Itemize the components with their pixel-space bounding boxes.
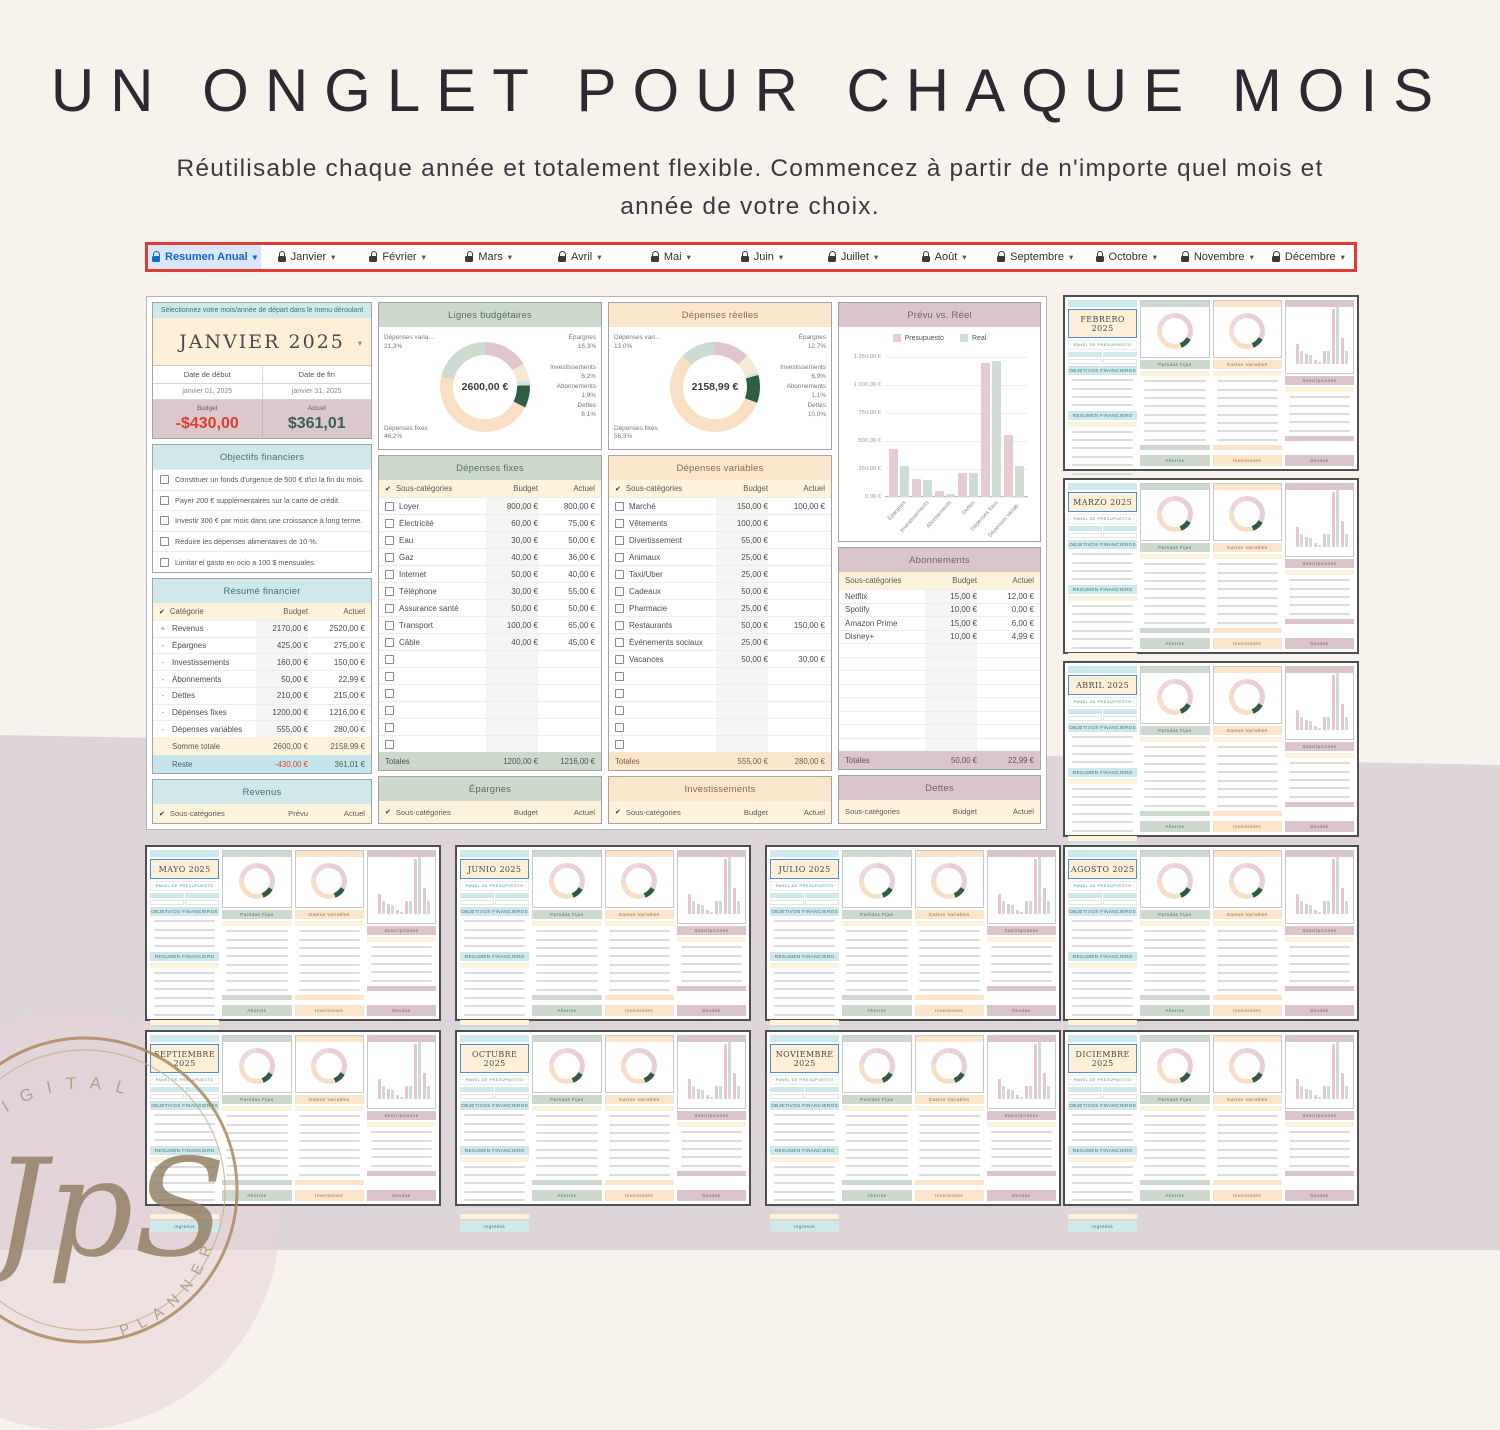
thumb-footer-ahorros: Ahorros (1140, 1190, 1209, 1201)
tab-label: Septembre (1010, 251, 1064, 263)
month-dropdown-value: JANVIER 2025 (179, 331, 345, 353)
chevron-down-icon: ▾ (508, 252, 512, 263)
legend-item: Real (960, 334, 986, 342)
donut-label: Épargnes16,3% (569, 334, 596, 351)
donut-label: Dettes10,0% (808, 402, 826, 419)
y-tick-label: 750,00 € (845, 410, 881, 416)
bar-group: Investissements (912, 357, 932, 497)
bar-presupuesto (912, 479, 921, 497)
budget-vs-real-chart-panel: Prévu vs. Réel PresupuestoReal 1 250,00 … (838, 302, 1041, 542)
column-subcategories: Sous-catégories (845, 807, 920, 816)
thumb-footer-deudas: Deudas (677, 1190, 746, 1201)
tab-août[interactable]: Août▾ (899, 245, 990, 269)
bar-presupuesto (1004, 435, 1013, 497)
column-budget: Budget (925, 576, 977, 585)
subscriptions-title: Abonnements (839, 548, 1040, 572)
checkbox[interactable] (615, 655, 624, 664)
row-label: Spotify (845, 605, 920, 614)
thumb-col-1: JUNIO 2025· PANEL DE PRESUPUESTO ·OBJETI… (460, 850, 529, 1016)
table-row-empty (379, 684, 601, 701)
thumb-variable-header: Gastos Variables (1213, 1095, 1282, 1104)
table-header-row: Sous-catégoriesBudgetActuel (839, 572, 1040, 589)
table-row: Divertissement55,00 € (609, 531, 831, 548)
tab-juin[interactable]: Juin▾ (716, 245, 807, 269)
totals-actual: 2158,99 € (313, 742, 365, 751)
tab-mars[interactable]: Mars▾ (443, 245, 534, 269)
x-category-label: Dettes (961, 500, 976, 516)
thumb-instruction-bar (1068, 483, 1137, 490)
tab-resumen-anual[interactable]: Resumen Anual▾ (148, 245, 261, 269)
date-labels-row: Date de début Date de fin (153, 366, 371, 384)
chevron-down-icon: ▾ (597, 252, 601, 263)
thumb-footer-deudas: Deudas (367, 1190, 436, 1201)
thumb-instruction-bar (460, 1035, 529, 1042)
table-row: Vacances50,00 €30,00 € (609, 650, 831, 667)
table-row-empty (379, 701, 601, 718)
thumb-footer-inversiones: Inversiones (1213, 455, 1282, 466)
thumb-variable-header: Gastos Variables (1213, 726, 1282, 735)
tab-label: Février (382, 251, 416, 263)
thumb-date-headers (1068, 709, 1137, 714)
financial-goals-panel: Objectifs financiers Constituer un fonds… (152, 444, 372, 573)
thumb-bar-chart (367, 850, 436, 924)
row-label: Vacances (629, 655, 711, 664)
thumb-col-2: Partidas FijasAhorros (842, 850, 911, 1016)
tab-label: Avril (571, 251, 592, 263)
donut-label-name: Investissements (780, 364, 826, 373)
checkbox[interactable] (160, 516, 169, 525)
lock-icon (1181, 256, 1189, 262)
thumb-footer-deudas: Deudas (1285, 638, 1354, 649)
checkbox[interactable] (615, 570, 624, 579)
thumb-footer-inversiones: Inversiones (915, 1190, 984, 1201)
table-row-empty (609, 735, 831, 752)
thumb-footer-inversiones: Inversiones (605, 1190, 674, 1201)
table-row-empty (379, 650, 601, 667)
checkbox[interactable] (615, 519, 624, 528)
thumb-real-donut (1213, 850, 1282, 908)
thumb-date-values (460, 1094, 529, 1099)
month-thumbnail: MAYO 2025· PANEL DE PRESUPUESTO ·OBJETIV… (145, 845, 441, 1021)
thumb-col-3: Gastos VariablesInversiones (605, 1035, 674, 1201)
checkbox[interactable] (385, 672, 394, 681)
chevron-down-icon: ▾ (1341, 252, 1345, 263)
svg-text:DIGITAL: DIGITAL (0, 1073, 141, 1132)
checkbox[interactable] (385, 689, 394, 698)
row-budget: 60,00 € (486, 515, 538, 531)
checkbox[interactable] (615, 723, 624, 732)
thumb-subscriptions-header: Suscripciones (987, 1111, 1056, 1120)
row-actual: 6,00 € (982, 619, 1034, 628)
thumb-subscriptions-header: Suscripciones (1285, 376, 1354, 385)
row-label: Restaurants (629, 621, 711, 630)
row-budget: 25,00 € (716, 634, 768, 650)
thumb-date-headers (460, 1087, 529, 1092)
tab-septembre[interactable]: Septembre▾ (990, 245, 1081, 269)
bar-real (946, 494, 955, 497)
y-tick-label: 1 000,00 € (845, 382, 881, 388)
check-icon: ✔ (385, 808, 391, 816)
donut-label-name: Épargnes (799, 334, 826, 343)
thumb-bar-chart (987, 1035, 1056, 1109)
bar-presupuesto (981, 363, 990, 497)
donut-label-pct: 1,9% (557, 392, 596, 401)
tab-mai[interactable]: Mai▾ (625, 245, 716, 269)
checkbox[interactable] (160, 537, 169, 546)
totals-budget: 555,00 € (716, 757, 768, 766)
chevron-down-icon: ▾ (1250, 252, 1254, 263)
thumb-month-title: ABRIL 2025 (1068, 675, 1137, 695)
donut-label-name: Dépenses fixes (614, 425, 658, 434)
thumb-footer-inversiones: Inversiones (1213, 1005, 1282, 1016)
thumb-summary-header: RESUMEN FINANCIERO (460, 952, 529, 961)
totals-row: Totales555,00 €280,00 € (609, 752, 831, 770)
goal-text: Constituer un fonds d'urgence de 500 € d… (175, 475, 364, 484)
lock-icon (741, 256, 749, 262)
checkbox[interactable] (385, 621, 394, 630)
date-start-label: Date de début (153, 366, 263, 383)
tab-label: Juin (754, 251, 774, 263)
row-budget: 160,00 € (256, 654, 308, 670)
rest-actual: 361,01 € (313, 760, 365, 769)
column-subcategories: Sous-catégories (626, 808, 711, 817)
lock-icon (651, 256, 659, 262)
table-row-empty (839, 738, 1040, 752)
checkbox[interactable] (385, 519, 394, 528)
thumb-date-headers (770, 893, 839, 898)
checkbox[interactable] (385, 740, 394, 749)
table-header-row: ✔Sous-catégoriesBudgetActuel (379, 480, 601, 497)
thumb-budget-donut (222, 850, 291, 908)
donut-center-total: 2158,99 € (670, 342, 760, 432)
thumb-col-1: MAYO 2025· PANEL DE PRESUPUESTO ·OBJETIV… (150, 850, 219, 1016)
row-label: Divertissement (629, 536, 711, 545)
thumb-month-title: JUNIO 2025 (460, 859, 529, 879)
thumb-objectives-header: OBJETIVOS FINANCIEROS (1068, 907, 1137, 916)
thumb-col-2: Partidas FijasAhorros (842, 1035, 911, 1201)
thumb-footer-ahorros: Ahorros (532, 1190, 601, 1201)
checkbox[interactable] (385, 638, 394, 647)
column-actual: Actuel (773, 808, 825, 817)
table-header-row: Sous-catégoriesBudgetActuel (839, 800, 1040, 823)
lock-icon (465, 256, 473, 262)
row-actual: 30,00 € (773, 655, 825, 664)
thumb-variable-header: Gastos Variables (295, 1095, 364, 1104)
thumb-real-donut (1213, 300, 1282, 358)
thumb-fixed-header: Partidas Fijas (1140, 910, 1209, 919)
thumb-bar-chart (1285, 300, 1354, 374)
budget-lines-chart-panel: Lignes budgétaires 2600,00 €Dépenses var… (378, 302, 602, 450)
budget-value: -$430,00 (153, 415, 262, 433)
thumb-panel-subtitle: · PANEL DE PRESUPUESTO · (1068, 514, 1137, 524)
check-icon: ✔ (385, 485, 391, 493)
thumb-summary-header: RESUMEN FINANCIERO (150, 952, 219, 961)
thumb-objectives-header: OBJETIVOS FINANCIEROS (770, 1101, 839, 1110)
checkbox[interactable] (385, 587, 394, 596)
lock-icon (922, 256, 930, 262)
row-label: Disney+ (845, 632, 920, 641)
fixed-expenses-panel: Dépenses fixes ✔Sous-catégoriesBudgetAct… (378, 455, 602, 771)
thumb-instruction-bar (1068, 1035, 1137, 1042)
column-budget: Budget (925, 807, 977, 816)
checkbox[interactable] (615, 502, 624, 511)
real-expenses-donut-chart: 2158,99 €Dépenses vari...13,0%Épargnes12… (609, 327, 831, 449)
sheet-column-2: Lignes budgétaires 2600,00 €Dépenses var… (378, 302, 602, 824)
checkbox[interactable] (615, 621, 624, 630)
row-actual: 275,00 € (313, 641, 365, 650)
thumb-budget-donut (842, 850, 911, 908)
thumb-summary-header: RESUMEN FINANCIERO (1068, 1146, 1137, 1155)
tab-janvier[interactable]: Janvier▾ (261, 245, 352, 269)
checkbox[interactable] (615, 672, 624, 681)
thumb-budget-donut (1140, 850, 1209, 908)
checkbox[interactable] (385, 502, 394, 511)
thumb-footer-ahorros: Ahorros (842, 1005, 911, 1016)
thumb-col-1: NOVIEMBRE 2025· PANEL DE PRESUPUESTO ·OB… (770, 1035, 839, 1201)
checkbox[interactable] (615, 553, 624, 562)
checkbox[interactable] (385, 655, 394, 664)
chevron-down-icon: ▾ (874, 252, 878, 263)
totals-actual: 22,99 € (982, 756, 1034, 765)
thumb-fixed-header: Partidas Fijas (842, 1095, 911, 1104)
row-label: Dépenses variables (172, 725, 251, 734)
investments-section: Investissements✔Sous-catégoriesBudgetAct… (608, 776, 832, 824)
thumb-objectives-header: OBJETIVOS FINANCIEROS (1068, 540, 1137, 549)
checkbox[interactable] (160, 496, 169, 505)
row-label: Épargnes (172, 641, 251, 650)
goal-text: Investir 300 € par mois dans une croissa… (175, 516, 362, 525)
page-title: UN ONGLET POUR CHAQUE MOIS (0, 56, 1500, 125)
thumb-date-values (1068, 1094, 1137, 1099)
actual-value: $361,01 (263, 415, 372, 433)
column-category: Catégorie (170, 607, 251, 616)
tab-label: Août (935, 251, 958, 263)
row-budget: 40,00 € (486, 634, 538, 650)
thumb-summary-header: RESUMEN FINANCIERO (1068, 585, 1137, 594)
row-label: Internet (399, 570, 481, 579)
column-budget: Budget (486, 484, 538, 493)
column-budget: Budget (486, 808, 538, 817)
thumb-fixed-header: Partidas Fijas (1140, 726, 1209, 735)
row-budget: 50,00 € (716, 651, 768, 667)
thumb-objectives-header: OBJETIVOS FINANCIEROS (1068, 366, 1137, 375)
thumb-col-2: Partidas FijasAhorros (1140, 1035, 1209, 1201)
budget-vs-real-bar-chart: 1 250,00 €1 000,00 €750,00 €500,00 €250,… (845, 351, 1030, 539)
totals-budget: 1200,00 € (486, 757, 538, 766)
thumb-panel-subtitle: · PANEL DE PRESUPUESTO · (1068, 881, 1137, 891)
thumb-subscriptions-header: Suscripciones (1285, 559, 1354, 568)
thumb-subscriptions-header: Suscripciones (677, 1111, 746, 1120)
checkbox[interactable] (615, 587, 624, 596)
row-actual: 150,00 € (313, 658, 365, 667)
thumb-bar-chart (1285, 1035, 1354, 1109)
donut-label-name: Dettes (808, 402, 826, 411)
thumb-budget-donut (842, 1035, 911, 1093)
donut-label-name: Investissements (550, 364, 596, 373)
thumb-col-2: Partidas FijasAhorros (222, 850, 291, 1016)
totals-label: Totales (845, 756, 920, 765)
thumb-real-donut (915, 850, 984, 908)
revenues-section: Revenus✔Sous-catégoriesPrévuActuel (152, 779, 372, 824)
sign-cell: - (159, 725, 167, 734)
column-subcategories: Sous-catégories (170, 809, 251, 818)
row-actual: 4,99 € (982, 632, 1034, 641)
thumb-col-4: SuscripcionesDeudas (1285, 666, 1354, 832)
donut-label-pct: 8,1% (578, 411, 596, 420)
thumb-real-donut (605, 1035, 674, 1093)
footer-section-title: Épargnes (379, 777, 601, 801)
real-expenses-title: Dépenses réelles (609, 303, 831, 327)
savings-section: Épargnes✔Sous-catégoriesBudgetActuel (378, 776, 602, 824)
table-row-empty (609, 684, 831, 701)
thumb-date-values (770, 900, 839, 905)
thumb-footer-deudas: Deudas (1285, 1005, 1354, 1016)
fixed-expenses-title: Dépenses fixes (379, 456, 601, 480)
row-actual: 40,00 € (543, 570, 595, 579)
chevron-down-icon: ▾ (331, 252, 335, 263)
row-actual: 75,00 € (543, 519, 595, 528)
column-actual: Actuel (982, 576, 1034, 585)
thumb-real-donut (1213, 666, 1282, 724)
thumb-month-title: FEBRERO 2025 (1068, 309, 1137, 338)
actual-label: Actuel (263, 405, 372, 412)
checkbox[interactable] (615, 638, 624, 647)
table-row-empty (839, 670, 1040, 684)
row-budget: 50,00 € (716, 617, 768, 633)
thumb-month-title: AGOSTO 2025 (1068, 859, 1137, 879)
thumb-col-3: Gastos VariablesInversiones (295, 850, 364, 1016)
financial-summary-panel: Résumé financier ✔CatégorieBudgetActuel+… (152, 578, 372, 774)
thumb-real-donut (1213, 483, 1282, 541)
chevron-down-icon: ▾ (1153, 252, 1157, 263)
budget-actual-block: Budget -$430,00 Actuel $361,01 (153, 400, 371, 438)
row-actual: 45,00 € (543, 638, 595, 647)
checkbox[interactable] (160, 475, 169, 484)
row-budget: 1200,00 € (256, 705, 308, 721)
row-actual: 0,00 € (982, 605, 1034, 614)
tab-novembre[interactable]: Novembre▾ (1172, 245, 1263, 269)
bar-real (992, 361, 1001, 497)
tab-décembre[interactable]: Décembre▾ (1263, 245, 1354, 269)
footer-section-title: Investissements (609, 777, 831, 801)
month-thumbnail: DICIEMBRE 2025· PANEL DE PRESUPUESTO ·OB… (1063, 1030, 1359, 1206)
thumb-fixed-header: Partidas Fijas (222, 910, 291, 919)
checkbox[interactable] (615, 706, 624, 715)
table-row: -Investissements160,00 €150,00 € (153, 653, 371, 670)
totals-label: Somme totale (172, 742, 251, 751)
checkbox[interactable] (385, 536, 394, 545)
thumb-col-2: Partidas FijasAhorros (1140, 666, 1209, 832)
donut-label-pct: 56,3% (614, 433, 658, 442)
checkbox[interactable] (160, 558, 169, 567)
column-subcategories: Sous-catégories (396, 484, 481, 493)
rest-budget: -430,00 € (256, 760, 308, 769)
tab-octobre[interactable]: Octobre▾ (1081, 245, 1172, 269)
checkbox[interactable] (385, 604, 394, 613)
tab-juillet[interactable]: Juillet▾ (807, 245, 898, 269)
month-thumbnail: JUNIO 2025· PANEL DE PRESUPUESTO ·OBJETI… (455, 845, 751, 1021)
donut-label: Dépenses vari...13,0% (614, 334, 660, 351)
thumb-footer-ahorros: Ahorros (1140, 821, 1209, 832)
thumb-col-4: SuscripcionesDeudas (1285, 1035, 1354, 1201)
thumb-panel-subtitle: · PANEL DE PRESUPUESTO · (150, 881, 219, 891)
thumb-fixed-header: Partidas Fijas (1140, 543, 1209, 552)
thumb-panel-subtitle: · PANEL DE PRESUPUESTO · (1068, 1075, 1137, 1085)
checkbox[interactable] (615, 740, 624, 749)
date-end-label: Date de fin (263, 366, 372, 383)
tab-avril[interactable]: Avril▾ (534, 245, 625, 269)
checkbox[interactable] (385, 570, 394, 579)
row-label: Dépenses fixes (172, 708, 251, 717)
table-row: Pharmacie25,00 € (609, 599, 831, 616)
thumb-fixed-header: Partidas Fijas (1140, 1095, 1209, 1104)
thumb-col-4: SuscripcionesDeudas (367, 850, 436, 1016)
checkbox[interactable] (615, 536, 624, 545)
row-label: Vêtements (629, 519, 711, 528)
digital-planner-watermark-logo: DIGITAL PLANNER JpS (0, 1020, 255, 1360)
donut-label-name: Dépenses varia... (384, 334, 434, 343)
check-icon: ✔ (159, 810, 165, 818)
donut-center-total: 2600,00 € (440, 342, 530, 432)
thumb-objectives-header: OBJETIVOS FINANCIEROS (150, 907, 219, 916)
bar-real (900, 466, 909, 497)
thumb-footer-deudas: Deudas (367, 1005, 436, 1016)
thumb-variable-header: Gastos Variables (915, 910, 984, 919)
checkbox[interactable] (385, 553, 394, 562)
totals-label: Totales (385, 757, 481, 766)
tab-février[interactable]: Février▾ (352, 245, 443, 269)
table-header-row: ✔Sous-catégoriesBudgetActuel (609, 801, 831, 823)
thumb-month-title: JULIO 2025 (770, 859, 839, 879)
row-actual: 55,00 € (543, 587, 595, 596)
thumb-footer-ahorros: Ahorros (222, 1005, 291, 1016)
row-label: Câble (399, 638, 481, 647)
thumb-subscriptions-header: Suscripciones (1285, 926, 1354, 935)
table-header-row: ✔Sous-catégoriesPrévuActuel (153, 804, 371, 823)
checkbox[interactable] (385, 706, 394, 715)
column-subcategories: Sous-catégories (626, 484, 711, 493)
goal-item: Limitar el gasto en ocio a 100 $ mensual… (153, 551, 371, 572)
donut-label-name: Abonnements (787, 383, 826, 392)
thumb-subscriptions-header: Suscripciones (367, 926, 436, 935)
row-label: Gaz (399, 553, 481, 562)
column-budget: Prévu (256, 809, 308, 818)
row-actual: 800,00 € (543, 502, 595, 511)
tab-label: Mars (478, 251, 502, 263)
table-row: Internet50,00 €40,00 € (379, 565, 601, 582)
chevron-down-icon: ▾ (358, 339, 364, 349)
month-thumbnail: NOVIEMBRE 2025· PANEL DE PRESUPUESTO ·OB… (765, 1030, 1061, 1206)
sheet-column-4: Prévu vs. Réel PresupuestoReal 1 250,00 … (838, 302, 1041, 824)
row-budget: 2170,00 € (256, 621, 308, 637)
column-subcategories: Sous-catégories (845, 576, 920, 585)
thumb-col-4: SuscripcionesDeudas (1285, 300, 1354, 466)
thumb-col-3: Gastos VariablesInversiones (915, 1035, 984, 1201)
checkbox[interactable] (385, 723, 394, 732)
thumb-panel-subtitle: · PANEL DE PRESUPUESTO · (770, 881, 839, 891)
thumb-col-1: DICIEMBRE 2025· PANEL DE PRESUPUESTO ·OB… (1068, 1035, 1137, 1201)
checkbox[interactable] (615, 689, 624, 698)
row-actual: 65,00 € (543, 621, 595, 630)
table-row-empty (609, 718, 831, 735)
thumb-real-donut (295, 1035, 364, 1093)
checkbox[interactable] (615, 604, 624, 613)
thumb-date-headers (1068, 893, 1137, 898)
thumb-instruction-bar (150, 850, 219, 857)
month-dropdown[interactable]: JANVIER 2025 ▾ (153, 318, 371, 366)
row-label: Dettes (172, 691, 251, 700)
row-actual: 12,00 € (982, 592, 1034, 601)
